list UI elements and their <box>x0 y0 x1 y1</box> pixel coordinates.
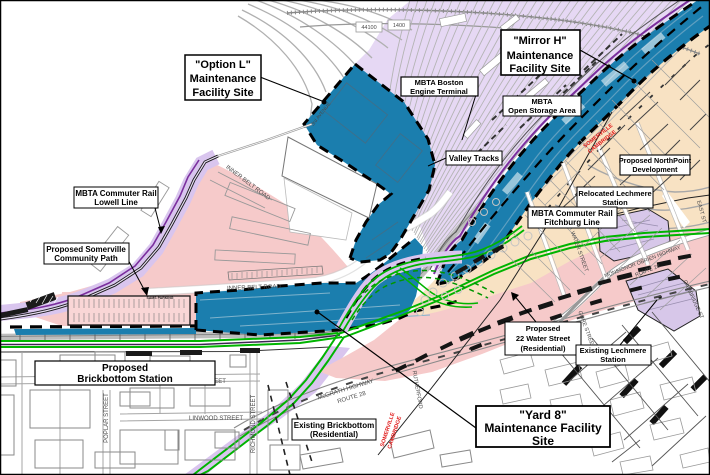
svg-text:MBTA Commuter Rail: MBTA Commuter Rail <box>75 189 156 198</box>
svg-text:Community Path: Community Path <box>54 254 118 263</box>
svg-text:Open Storage Area: Open Storage Area <box>508 106 576 115</box>
svg-text:Station: Station <box>602 198 628 207</box>
svg-text:Brickbottom Station: Brickbottom Station <box>77 374 173 385</box>
svg-text:"Option L": "Option L" <box>195 59 251 71</box>
svg-text:Valley Tracks: Valley Tracks <box>449 154 500 163</box>
svg-text:44100: 44100 <box>361 25 376 31</box>
svg-text:Facility Site: Facility Site <box>509 63 570 75</box>
svg-text:MBTA: MBTA <box>531 97 553 106</box>
svg-text:POPLAR STREET: POPLAR STREET <box>104 393 110 443</box>
svg-text:Facility Site: Facility Site <box>192 87 253 99</box>
svg-text:(Residential): (Residential) <box>520 344 566 353</box>
svg-text:Proposed Somerville: Proposed Somerville <box>46 245 126 254</box>
svg-text:MBTA Commuter Rail: MBTA Commuter Rail <box>531 209 612 218</box>
svg-text:Fitchburg Line: Fitchburg Line <box>544 218 600 227</box>
svg-text:Lowell Line: Lowell Line <box>94 198 138 207</box>
svg-text:Existing Lechmere: Existing Lechmere <box>580 346 647 355</box>
svg-text:RICHMOND STREET: RICHMOND STREET <box>251 395 257 454</box>
svg-text:Relocated Lechmere: Relocated Lechmere <box>578 189 651 198</box>
svg-text:SAMS PARKING: SAMS PARKING <box>147 296 174 300</box>
svg-text:Proposed: Proposed <box>526 324 561 333</box>
svg-text:"Yard 8": "Yard 8" <box>519 408 566 422</box>
svg-text:Existing Brickbottom: Existing Brickbottom <box>294 421 374 430</box>
svg-text:Development: Development <box>632 165 678 174</box>
svg-text:1400: 1400 <box>393 23 405 29</box>
svg-text:Maintenance: Maintenance <box>190 73 257 85</box>
svg-text:LINWOOD STREET: LINWOOD STREET <box>189 416 243 422</box>
svg-text:Site: Site <box>532 434 554 448</box>
svg-text:Maintenance Facility: Maintenance Facility <box>484 421 602 435</box>
svg-text:22 Water Street: 22 Water Street <box>516 334 571 343</box>
svg-text:Proposed: Proposed <box>102 363 148 374</box>
svg-text:Proposed NorthPoint: Proposed NorthPoint <box>619 156 692 165</box>
svg-text:Station: Station <box>600 355 626 364</box>
svg-text:"Mirror H": "Mirror H" <box>513 35 566 47</box>
svg-text:MBTA Boston: MBTA Boston <box>415 78 464 87</box>
svg-text:Engine Terminal: Engine Terminal <box>410 87 468 96</box>
svg-text:(Residential): (Residential) <box>310 430 358 439</box>
svg-text:Maintenance: Maintenance <box>507 50 574 62</box>
